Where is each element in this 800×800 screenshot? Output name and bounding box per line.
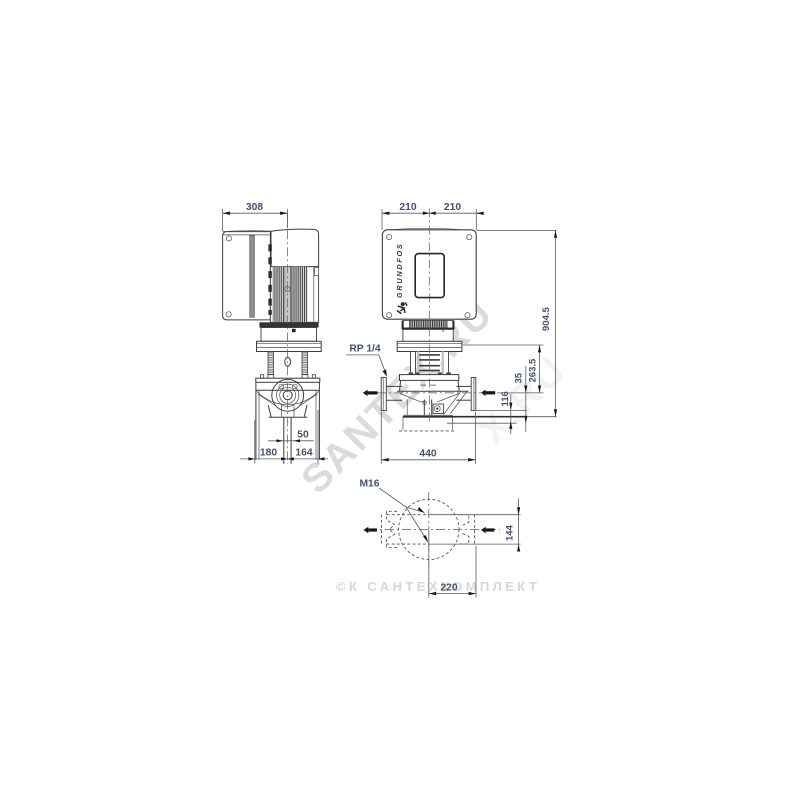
svg-text:308: 308 [246,202,263,213]
svg-text:220: 220 [440,582,457,593]
svg-text:144: 144 [505,524,516,541]
svg-text:440: 440 [419,448,436,459]
svg-text:210: 210 [399,202,416,213]
svg-text:904.5: 904.5 [541,307,552,331]
svg-text:164: 164 [295,447,312,458]
svg-text:RP 1/4: RP 1/4 [349,344,381,355]
svg-text:180: 180 [260,447,277,458]
svg-text:116: 116 [500,391,511,406]
svg-text:M16: M16 [359,479,379,490]
svg-text:210: 210 [444,202,461,213]
svg-text:50: 50 [297,430,309,441]
svg-text:©К САНТЕХКОМПЛЕКТ: ©К САНТЕХКОМПЛЕКТ [336,579,540,594]
svg-text:GRUNDFOS: GRUNDFOS [395,242,404,298]
svg-text:263.5: 263.5 [528,358,539,382]
svg-text:35: 35 [514,372,525,383]
svg-text:X.RU: X.RU [470,347,575,453]
